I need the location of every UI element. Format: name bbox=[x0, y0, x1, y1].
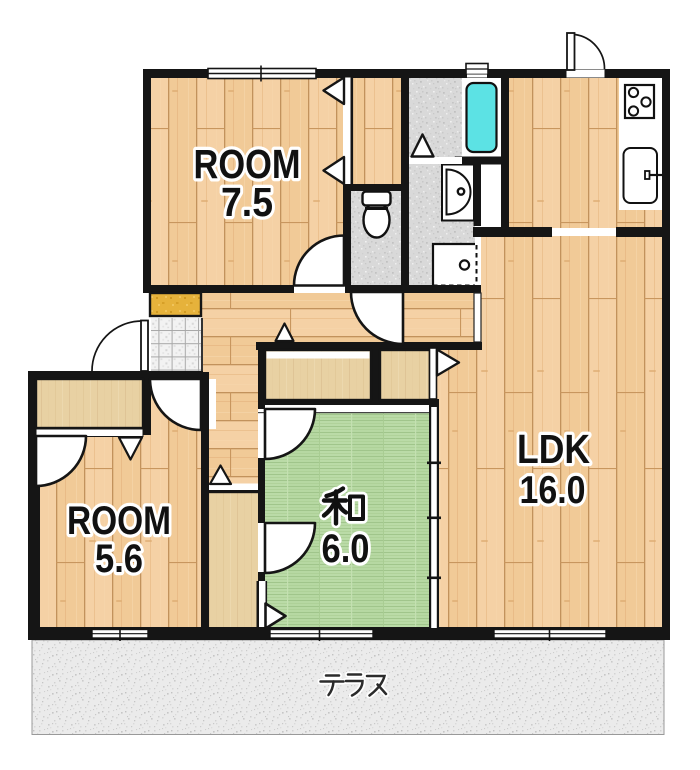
svg-text:16.0: 16.0 bbox=[520, 469, 586, 512]
svg-text:5.6: 5.6 bbox=[95, 537, 143, 581]
svg-text:7.5: 7.5 bbox=[221, 179, 273, 225]
svg-text:6.0: 6.0 bbox=[322, 527, 370, 571]
svg-text:LDK: LDK bbox=[517, 426, 590, 472]
